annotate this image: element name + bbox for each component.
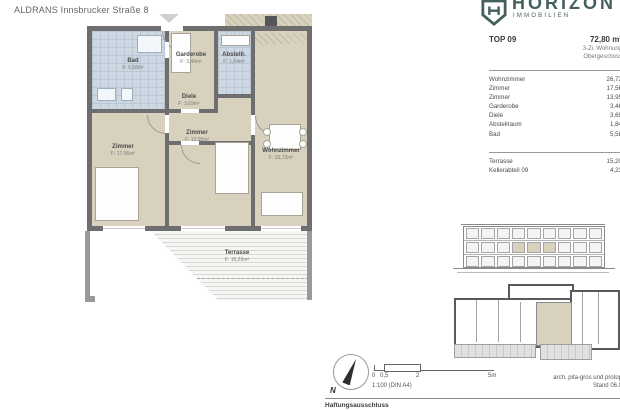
- unit-type: 3-Zi. Wohnung: [489, 46, 620, 52]
- row-value: 15,20: [607, 158, 620, 167]
- row-label: Zimmer: [489, 94, 510, 103]
- table-row: Garderobe 3,46: [489, 103, 620, 112]
- room-name: Abstellr.: [222, 52, 246, 59]
- scale-tick: [374, 365, 375, 371]
- room-abstell-vorraum: [218, 98, 251, 113]
- elevation-floor: [464, 241, 604, 255]
- row-value: 4,23: [610, 167, 620, 176]
- north-arrow: [333, 354, 369, 390]
- room-area: F: 3,69m²: [178, 101, 199, 107]
- terrace-decking: [85, 231, 312, 300]
- credit-block: arch. pita-gros und protop Stand 06.0: [470, 374, 620, 390]
- table-row: Zimmer 13,95: [489, 94, 620, 103]
- row-value: 3,46: [610, 103, 620, 112]
- window-wohnzimmer: [261, 226, 301, 231]
- north-needle-icon: [342, 357, 360, 385]
- garderobe-door-opening: [181, 109, 199, 113]
- unit-level: Obergeschoss: [489, 54, 620, 60]
- key-plan-wall: [582, 292, 583, 344]
- table-row: Zimmer 17,56: [489, 85, 620, 94]
- table-row: Kellerabteil 09 4,23: [489, 167, 620, 176]
- room-name: Zimmer: [185, 130, 209, 137]
- revision-date: Stand 06.0: [470, 382, 620, 390]
- room-area: F: 26,72m²: [262, 155, 300, 161]
- building-elevation: [453, 220, 615, 276]
- entry-marker-icon: [159, 14, 179, 23]
- scale-tick-label: 0: [372, 373, 375, 379]
- room-area: F: 5,58m²: [122, 65, 143, 71]
- footer-rule: [325, 398, 620, 399]
- key-plan-wing-right: [570, 290, 620, 350]
- key-plan-wall: [520, 302, 521, 342]
- unit-total-area: 72,80 m²: [590, 35, 620, 44]
- scale-segment: [384, 364, 421, 372]
- dining-table: [269, 124, 301, 150]
- key-plan-wall: [476, 300, 477, 342]
- floor-plan: Bad F: 5,58m² Garderobe F: 3,46m² Abstel…: [85, 12, 317, 312]
- separator: [489, 152, 620, 153]
- room-name: Bad: [122, 58, 143, 65]
- row-value: 5,58: [610, 131, 620, 140]
- row-label: Kellerabteil 09: [489, 167, 528, 176]
- room-area: F: 1,84m²: [222, 59, 246, 65]
- room-name: Zimmer: [111, 144, 135, 151]
- row-label: Garderobe: [489, 103, 519, 112]
- key-plan-wall: [598, 292, 599, 344]
- window-zimmer1: [103, 226, 145, 231]
- area-table: Wohnzimmer 26,72 Zimmer 17,56 Zimmer 13,…: [489, 76, 620, 140]
- scale-note: 1:100 (DIN A4): [372, 383, 412, 389]
- table-row: Bad 5,58: [489, 131, 620, 140]
- room-label-bad: Bad F: 5,58m²: [122, 58, 143, 71]
- ground-line: [453, 268, 615, 269]
- brand-name: HORIZON: [512, 0, 616, 14]
- boundary-wall-left: [85, 231, 90, 302]
- area-table-extra: Terrasse 15,20 Kellerabteil 09 4,23: [489, 158, 620, 176]
- toilet: [121, 88, 133, 101]
- table-row: Wohnzimmer 26,72: [489, 76, 620, 85]
- row-label: Diele: [489, 112, 503, 121]
- roof-line: [461, 224, 605, 225]
- room-label-abstellraum: Abstellr. F: 1,84m²: [222, 52, 246, 65]
- elevation-floor: [464, 227, 604, 241]
- room-label-zimmer2: Zimmer F: 13,95m²: [185, 130, 209, 143]
- separator: [489, 70, 620, 71]
- chair: [263, 128, 271, 136]
- row-value: 26,72: [607, 76, 620, 85]
- row-value: 13,95: [607, 94, 620, 103]
- room-label-zimmer1: Zimmer F: 17,56m²: [111, 144, 135, 157]
- room-label-wohnzimmer: Wohnzimmer F: 26,72m²: [262, 148, 300, 161]
- room-area: F: 13,95m²: [185, 137, 209, 143]
- room-label-diele: Diele F: 3,69m²: [178, 94, 199, 107]
- bed-zimmer2: [215, 142, 249, 194]
- row-label: Abstellraum: [489, 121, 522, 130]
- row-value: 3,69: [610, 112, 620, 121]
- key-plan-terrace-strip: [454, 344, 536, 358]
- north-label: N: [330, 386, 336, 395]
- room-name: Diele: [178, 94, 199, 101]
- room-area: F: 3,46m²: [176, 59, 206, 65]
- scale-tick-label: 2: [416, 373, 419, 379]
- unit-id: TOP 09: [489, 35, 516, 44]
- table-row: Abstellraum 1,84: [489, 121, 620, 130]
- architect-credit: arch. pita-gros und protop: [470, 374, 620, 382]
- key-plan-unit-terrace: [540, 344, 592, 360]
- row-label: Wohnzimmer: [489, 76, 525, 85]
- bathtub: [137, 35, 162, 53]
- chair: [263, 140, 271, 148]
- washbasin: [97, 88, 116, 101]
- room-diele: [169, 113, 251, 141]
- row-label: Terrasse: [489, 158, 513, 167]
- bed-zimmer1: [95, 167, 139, 221]
- brand-shield-icon: [478, 0, 510, 26]
- row-value: 17,56: [607, 85, 620, 94]
- key-plan: [452, 282, 620, 360]
- unit-header: TOP 09 72,80 m²: [489, 35, 620, 44]
- row-label: Zimmer: [489, 85, 510, 94]
- room-name: Wohnzimmer: [262, 148, 300, 155]
- sofa: [261, 192, 303, 216]
- bad-door-opening: [165, 42, 169, 58]
- elevation-facade: [463, 226, 605, 268]
- boundary-wall-stub: [85, 296, 95, 302]
- row-value: 1,84: [610, 121, 620, 130]
- table-row: Diele 3,69: [489, 112, 620, 121]
- scale-tick-label: 0,5: [380, 373, 388, 379]
- room-name: Garderobe: [176, 52, 206, 59]
- room-area: F: 15,20m²: [225, 257, 250, 263]
- elevation-floor: [464, 255, 604, 268]
- shelf: [221, 35, 250, 46]
- terrace-dashed-line: [197, 278, 309, 279]
- room-label-terrasse: Terrasse F: 15,20m²: [225, 250, 250, 263]
- chair: [299, 128, 307, 136]
- room-name: Terrasse: [225, 250, 250, 257]
- kitchen-counter: [255, 33, 307, 44]
- table-row: Terrasse 15,20: [489, 158, 620, 167]
- room-area: F: 17,56m²: [111, 151, 135, 157]
- boundary-wall-right: [307, 231, 312, 300]
- room-label-garderobe: Garderobe F: 3,46m²: [176, 52, 206, 65]
- window-zimmer2: [181, 226, 225, 231]
- disclaimer: Haftungsausschluss: [325, 402, 389, 409]
- key-plan-wall: [498, 300, 499, 342]
- row-label: Bad: [489, 131, 500, 140]
- chair: [299, 140, 307, 148]
- key-plan-unit-highlight: [536, 302, 572, 346]
- terrain-line: [457, 272, 609, 273]
- brand-subtitle: IMMOBILIEN: [513, 13, 570, 19]
